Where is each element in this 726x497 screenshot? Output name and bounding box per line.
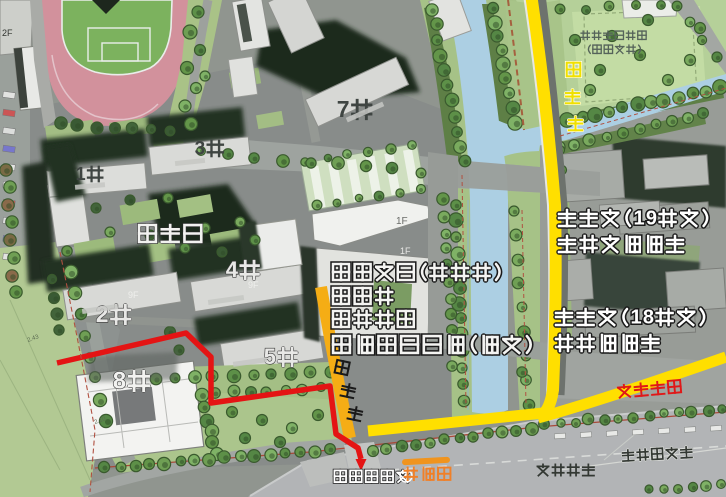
svg-text:1F: 1F <box>400 246 411 256</box>
svg-text:1F: 1F <box>396 216 408 227</box>
svg-text:8: 8 <box>113 368 126 395</box>
svg-text:4: 4 <box>226 257 239 282</box>
svg-text:9F: 9F <box>128 290 139 300</box>
svg-text:9: 9 <box>646 207 657 229</box>
svg-text:2F: 2F <box>2 28 13 38</box>
svg-text:1: 1 <box>76 164 86 184</box>
svg-text:2: 2 <box>96 301 109 327</box>
svg-text:1: 1 <box>633 207 644 229</box>
svg-text:9F: 9F <box>248 280 259 290</box>
svg-text:1: 1 <box>630 306 641 328</box>
svg-text:8: 8 <box>643 306 654 328</box>
svg-text:3: 3 <box>195 139 206 160</box>
svg-text:5: 5 <box>264 344 276 369</box>
